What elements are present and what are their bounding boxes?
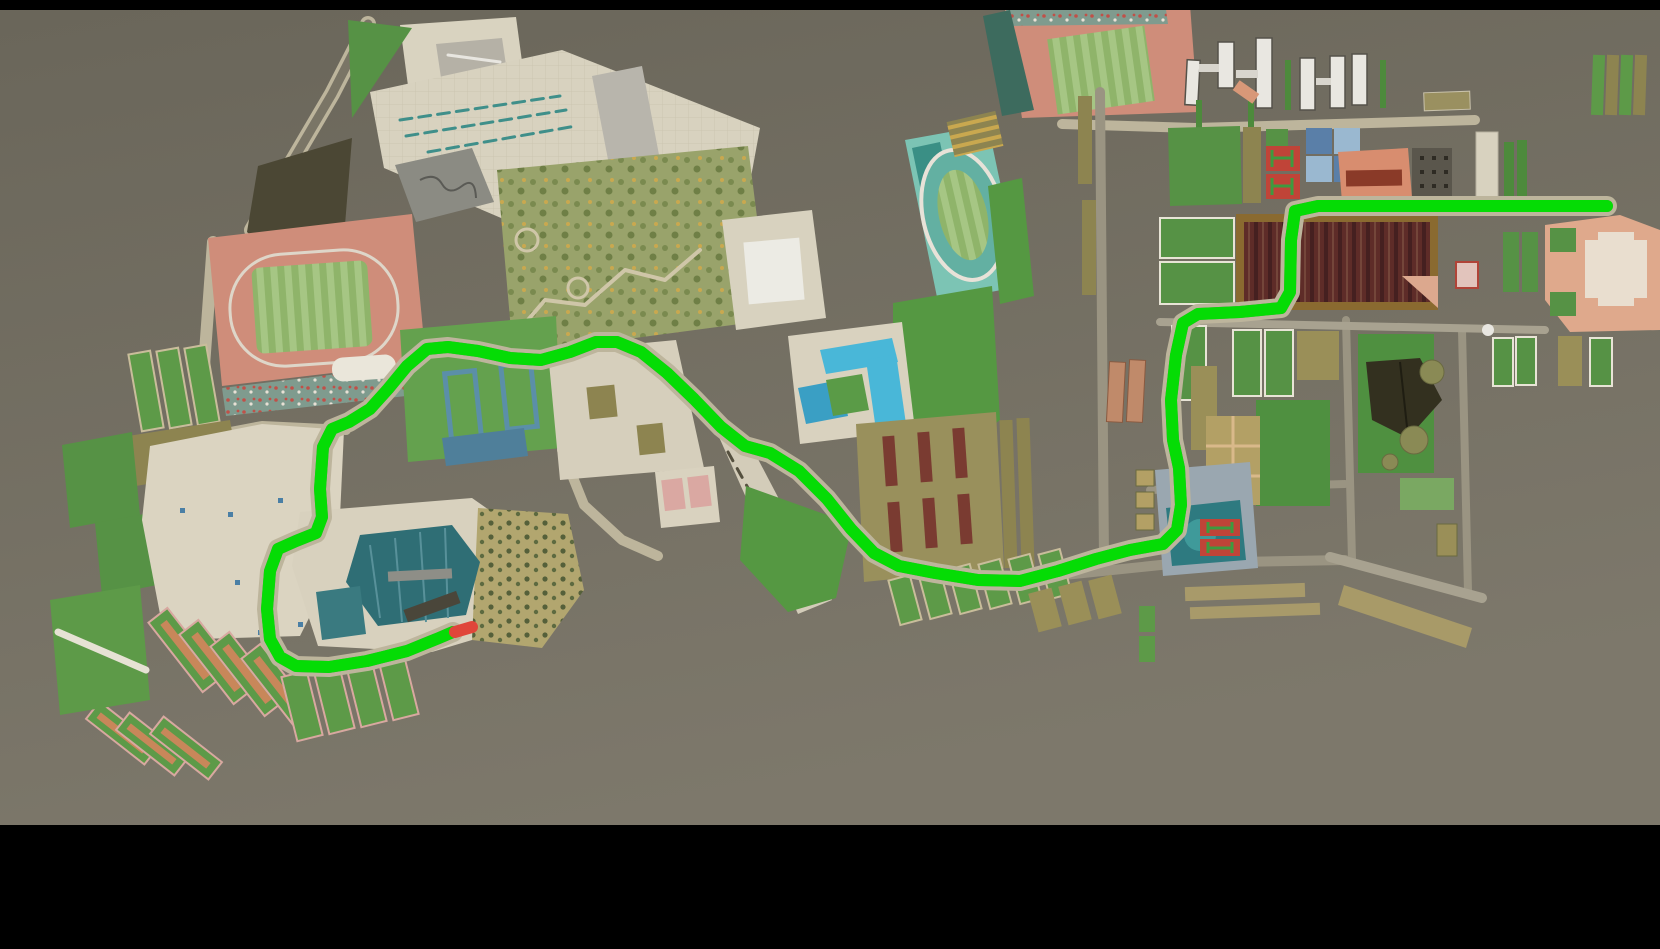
mottled-lawn [1400, 478, 1454, 510]
rc-lawn-framed [1590, 338, 1612, 386]
tree-ball [1382, 454, 1398, 470]
rc-lawn-framed [1265, 330, 1293, 396]
bottom-strip [1139, 636, 1155, 662]
stadium-west-field [251, 260, 373, 354]
rc-lawn-framed [1233, 330, 1261, 396]
dorm-slab [1330, 56, 1345, 108]
terracotta-roof [1346, 170, 1402, 187]
khaki-small-building [1437, 524, 1457, 556]
plaza-east-building-wing [1598, 232, 1634, 306]
rc-lawn-framed [1493, 338, 1513, 386]
edge-strip [1605, 55, 1619, 115]
tan-square [1136, 470, 1154, 486]
lawn-west-a [62, 432, 140, 528]
arena-annex [316, 586, 366, 640]
plaza-east-lawn [1550, 228, 1576, 252]
blue-checker-court [1334, 128, 1360, 154]
rc-khaki-trees [1297, 331, 1339, 380]
small-pink-building [1456, 262, 1478, 288]
hedge-strip [1517, 140, 1527, 196]
tan-square [1136, 514, 1154, 530]
letterbox-top [0, 0, 1660, 10]
salmon-long-building [1126, 360, 1145, 423]
dorm-slab [1256, 38, 1272, 108]
edge-strip [1633, 55, 1647, 115]
dorm-bridge [1236, 70, 1258, 78]
rc-khaki-band [1243, 127, 1261, 203]
rc-big-lawn [1256, 400, 1330, 506]
rc-lawn-column [1503, 232, 1519, 292]
salmon-long-building [1106, 362, 1125, 423]
dorm-slab [1300, 58, 1315, 110]
pink-court [687, 475, 712, 508]
hedge-strip [1285, 60, 1291, 110]
pink-court [661, 478, 686, 511]
campus-map-canvas[interactable] [0, 0, 1660, 949]
tan-square [1136, 492, 1154, 508]
rc-lawn-framed [1160, 218, 1234, 258]
bottom-strip [1139, 606, 1155, 632]
pool-courtyard [826, 374, 869, 416]
edge-strip [1591, 55, 1605, 115]
beige-tower [1476, 132, 1498, 198]
letterbox-bottom [0, 825, 1660, 949]
dorm-bridge [1199, 64, 1219, 72]
dorm-slab [1352, 54, 1367, 105]
hedge-strip [1504, 142, 1514, 198]
tree-ball [1420, 360, 1444, 384]
roundabout [1482, 324, 1494, 336]
blue-checker-court [1306, 128, 1332, 154]
blue-checker-court [1306, 156, 1332, 182]
rc-lawn-nw [1168, 126, 1242, 206]
khaki-dotted-lot [1558, 336, 1582, 386]
road-rc-west [1100, 92, 1104, 560]
plaza-east-lawn [1550, 292, 1576, 316]
rc-lawn-framed [1516, 337, 1536, 385]
khaki-strip [1082, 200, 1096, 295]
plaza-mid-lawn [637, 423, 666, 456]
route-destination-marker [455, 627, 472, 632]
building-ne-core [743, 238, 804, 305]
screenshot-stage [0, 0, 1660, 949]
hedge-strip [1380, 60, 1386, 108]
maroon-garden [1244, 222, 1430, 302]
dorm-bridge [1316, 78, 1331, 85]
rc-lawn-column [1522, 232, 1538, 292]
tree-ball [1400, 426, 1428, 454]
plaza-mid-lawn [586, 385, 617, 420]
dorm-slab [1185, 60, 1200, 106]
edge-strip [1619, 55, 1633, 115]
khaki-building-north [1424, 91, 1471, 111]
rc-lawn-framed [1160, 262, 1234, 304]
dorm-slab [1218, 42, 1234, 88]
khaki-strip [1078, 96, 1092, 184]
